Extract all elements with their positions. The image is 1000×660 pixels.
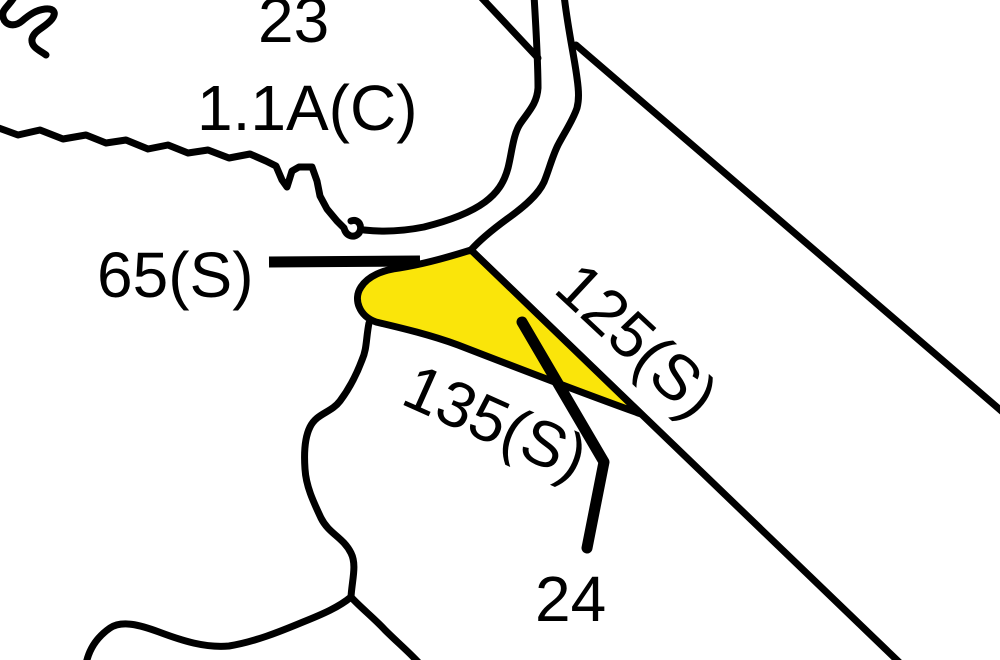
label-parcel-24: 24 [535,563,606,635]
boundary-line-nw [479,0,538,58]
label-area-1-1ac: 1.1A(C) [197,72,418,144]
label-lot-65s: 65(S) [97,239,254,311]
parcel-map: 23 1.1A(C) 65(S) 125(S) 135(S) 24 [0,0,1000,660]
map-canvas: 23 1.1A(C) 65(S) 125(S) 135(S) 24 [0,0,1000,660]
stream-squiggle [3,0,54,55]
river-south-bank [471,0,579,250]
parcel-west-boundary [305,323,369,597]
parcel-boundary-branch-left [86,597,351,660]
label-parcel-23: 23 [258,0,329,56]
parcel-boundary-branch-right [351,597,419,660]
leader-line-65s [269,261,420,262]
